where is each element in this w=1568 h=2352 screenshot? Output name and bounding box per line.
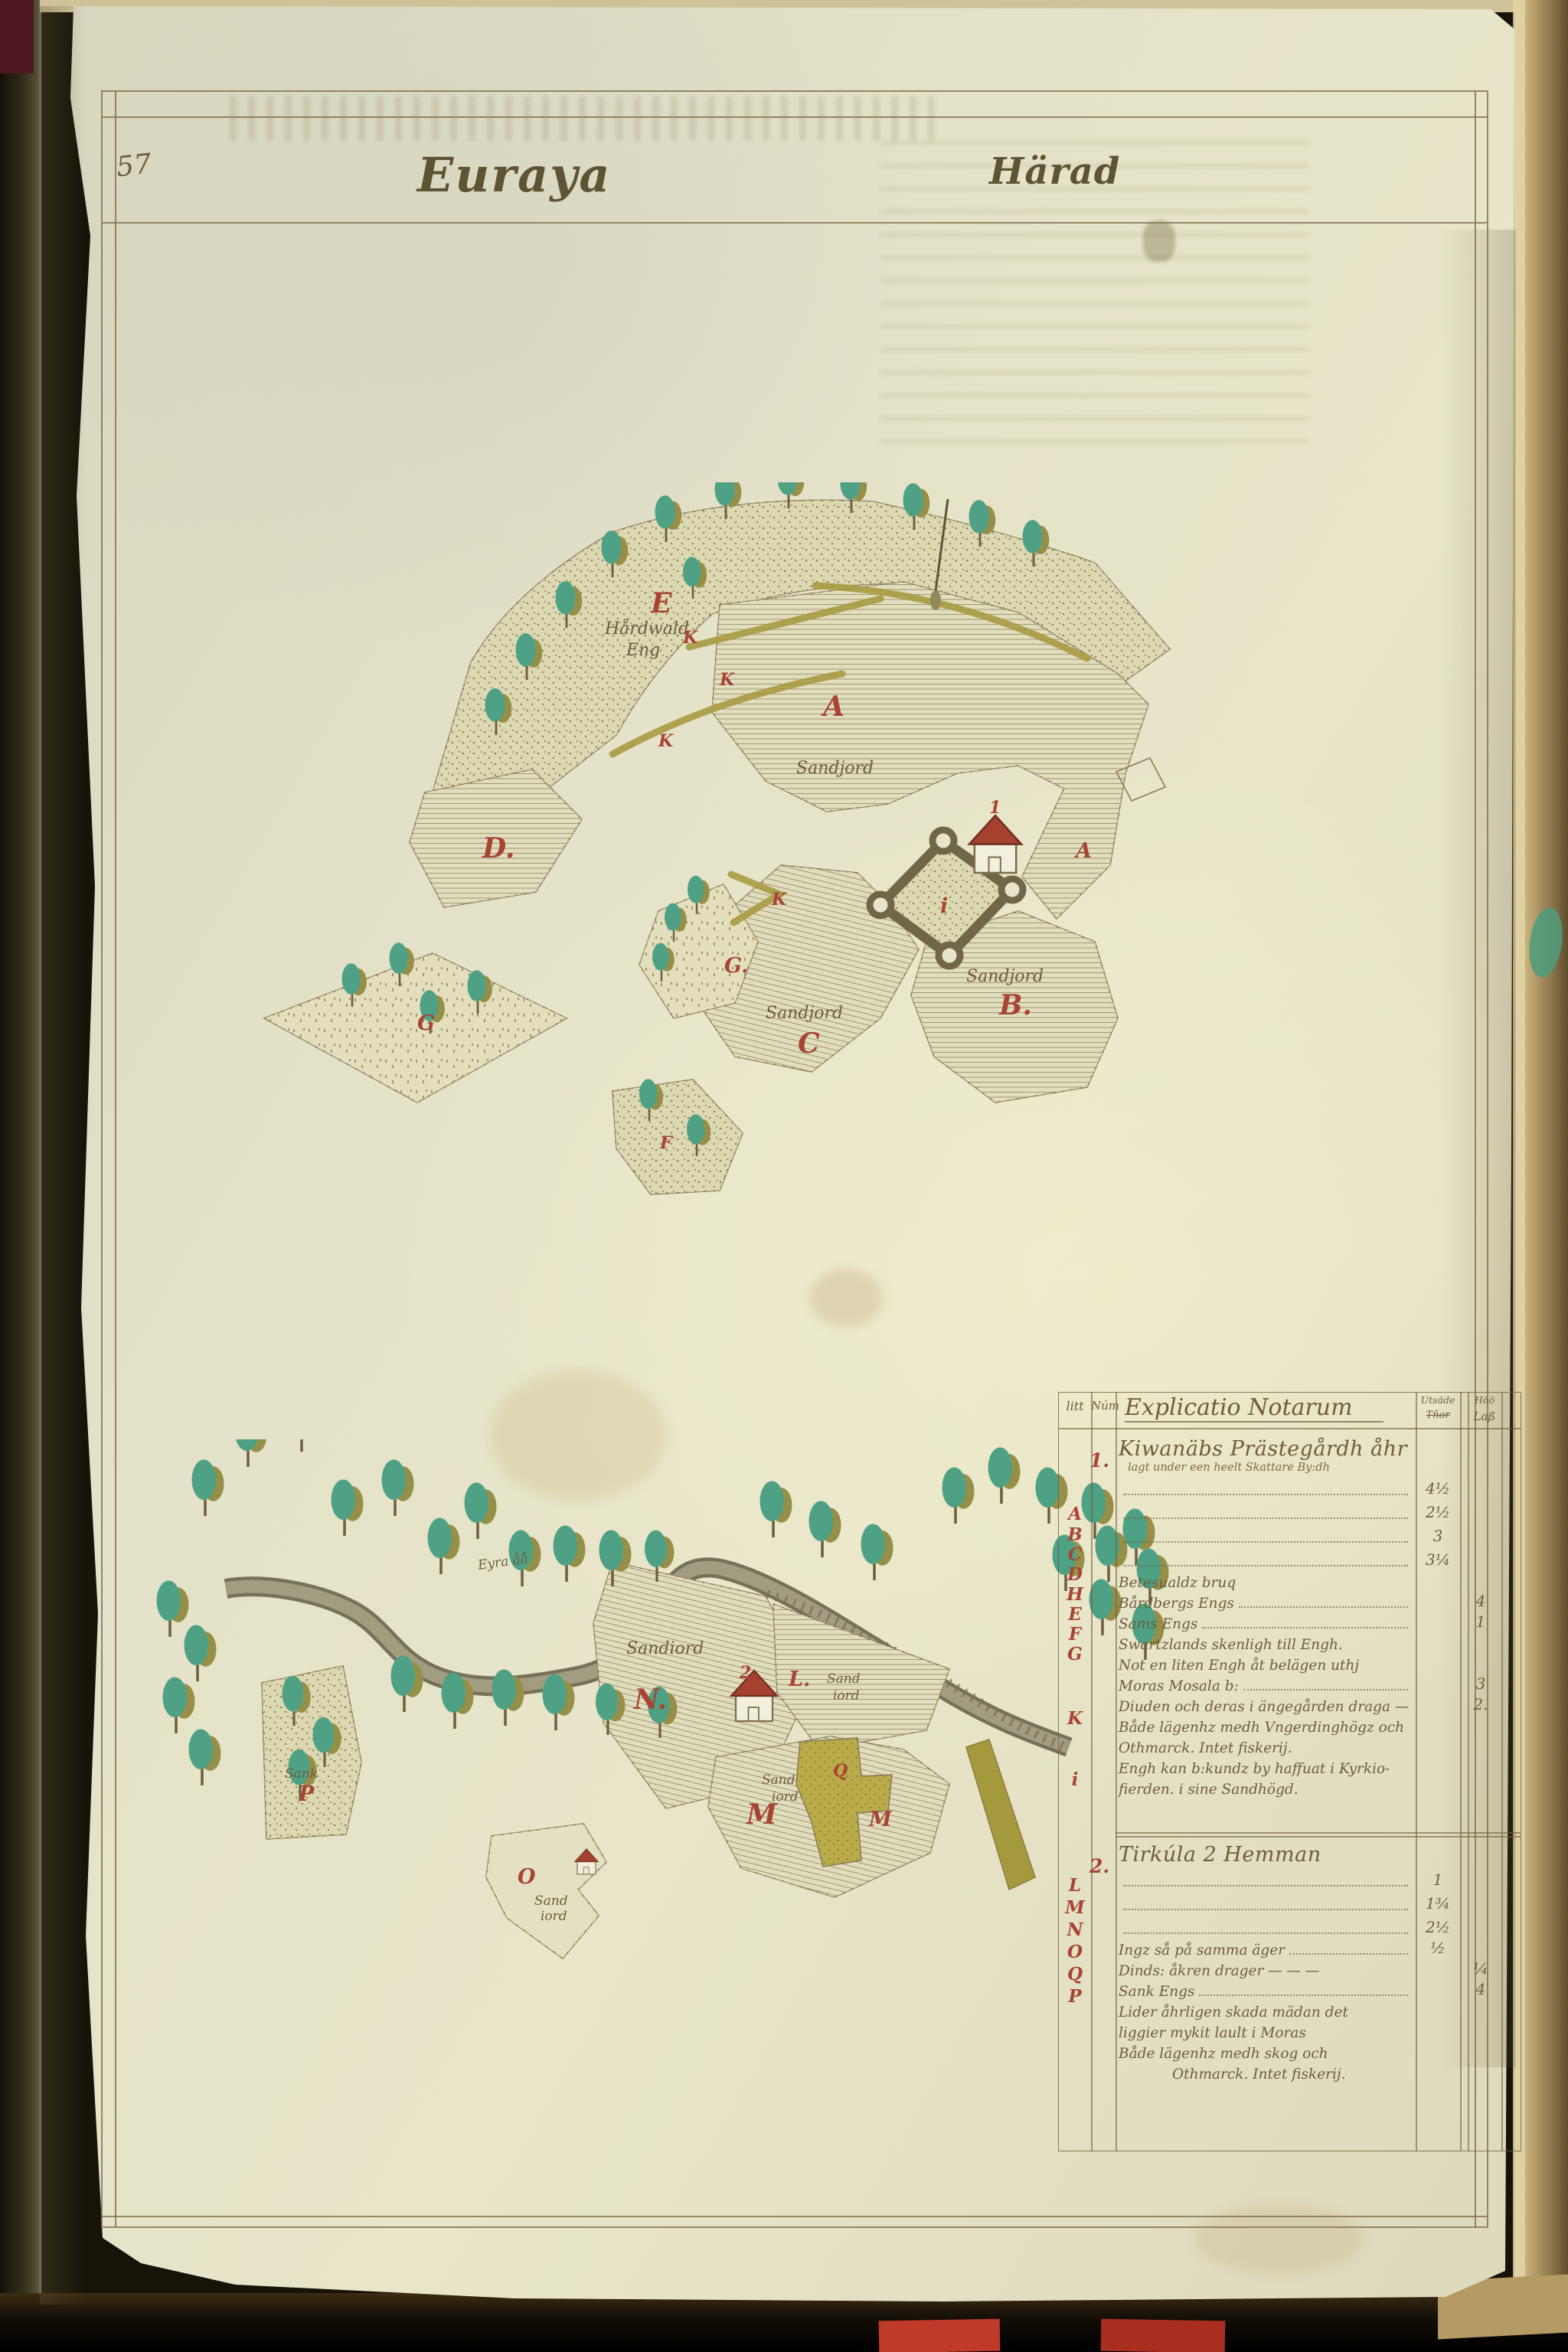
table-row: Not en liten Engh åt belägen uthj xyxy=(1119,1653,1411,1674)
row-text: Othmarck. Intet fiskerij. xyxy=(1119,1740,1292,1756)
parcel-letter-p: P xyxy=(298,1782,315,1806)
table-row: Bårdbergs Engs4 xyxy=(1119,1591,1411,1612)
soil-label-sandjord: Sandjord xyxy=(766,1004,843,1023)
row-text: Moras Mosala b: xyxy=(1119,1678,1239,1694)
row-text: Bårdbergs Engs xyxy=(1119,1596,1234,1612)
dotted-leader xyxy=(1123,1932,1408,1934)
shadow-band-bottom xyxy=(0,2293,1568,2352)
parcel-letter-a: A xyxy=(821,691,844,723)
meadow-label: Hårdwald xyxy=(604,618,689,639)
table-row: Ingz så på samma äger½ xyxy=(1119,1938,1411,1958)
parcel-letter-g: G. xyxy=(724,954,749,978)
litt-letter: O xyxy=(1059,1942,1091,1962)
parcel-letter-l: L. xyxy=(788,1668,810,1691)
dotted-leader xyxy=(1123,1517,1408,1519)
soil-label-sandiord: iord xyxy=(541,1909,567,1924)
dotted-leader xyxy=(1123,1909,1408,1910)
meadow-label: Eng xyxy=(626,641,660,660)
dotted-leader xyxy=(1123,1494,1408,1495)
soil-label-sandiord: Sand xyxy=(534,1893,568,1909)
parcel-letter-d: D. xyxy=(482,832,514,864)
parcel-letter-q: Q xyxy=(833,1761,848,1781)
entry-subtitle: lagt under een heelt Skattare By:dh xyxy=(1128,1462,1505,1474)
row-text: Sank Engs xyxy=(1119,1984,1194,2000)
lower-map: Eyra åå Sandiord N. 2 L. Sand iord Sand … xyxy=(115,1439,1187,2021)
litt-letter: L xyxy=(1059,1875,1091,1896)
table-row: 3¼ xyxy=(1119,1547,1411,1570)
dotted-leader xyxy=(1243,1689,1408,1690)
parcel-letter-b: B. xyxy=(998,989,1032,1021)
table-row: Sank Engs4 xyxy=(1119,1979,1411,2000)
value-lass: 1 xyxy=(1454,1612,1508,1631)
soil-label-sandiord: Sand xyxy=(762,1772,795,1788)
entry-number: 2. xyxy=(1085,1855,1114,1877)
photographed-atlas-page: 57 Euraya Härad xyxy=(0,0,1568,2352)
table-entry: Kiwanäbs Prästegårdh åhrlagt under een h… xyxy=(1119,1437,1505,1798)
value-tunnor: 1¾ xyxy=(1411,1894,1465,1913)
row-text: Ingz så på samma äger xyxy=(1119,1942,1285,1958)
soil-label-sandiord: Sandiord xyxy=(626,1639,704,1658)
row-text: Dinds: åkren drager — — — xyxy=(1119,1963,1319,1979)
parcel-letter-g: G xyxy=(417,1011,435,1035)
row-text: Diuden och deras i ängegården draga — xyxy=(1119,1699,1409,1715)
litt-letter: D xyxy=(1059,1564,1091,1585)
soil-label-sandjord: Sandjord xyxy=(796,759,874,778)
litt-letter: F xyxy=(1059,1624,1091,1645)
dotted-leader xyxy=(1123,1541,1408,1543)
deckle-edge-shadow xyxy=(40,6,86,2305)
parcel-letter-k: K xyxy=(658,731,674,751)
table-row: Dinds: åkren drager — — —¼ xyxy=(1119,1958,1411,1979)
litt-letter: M xyxy=(1059,1897,1091,1918)
litt-letter: E xyxy=(1059,1604,1091,1625)
value-lass: 2. xyxy=(1454,1695,1508,1713)
table-row: liggier mykit lault i Moras xyxy=(1119,2020,1411,2041)
parcel-letter-m: M xyxy=(745,1798,778,1831)
value-lass: 4 xyxy=(1454,1980,1508,1998)
paper-stain xyxy=(810,1269,883,1327)
dotted-leader xyxy=(1123,1565,1408,1566)
table-row: Swartzlands skenligh till Engh. xyxy=(1119,1632,1411,1653)
parcel-letter-c: C xyxy=(798,1027,820,1060)
value-tunnor: 2½ xyxy=(1411,1503,1465,1521)
dotted-leader xyxy=(1123,1885,1408,1886)
soil-label-sandjord: Sandjord xyxy=(966,967,1044,986)
table-row: Diuden och deras i ängegården draga —2. xyxy=(1119,1694,1411,1715)
row-text: Sams Engs xyxy=(1119,1616,1197,1632)
survey-pole-blade xyxy=(930,590,941,610)
value-lass: ¼ xyxy=(1454,1959,1508,1978)
row-text: Swartzlands skenligh till Engh. xyxy=(1119,1637,1343,1653)
row-text: Lider åhrligen skada mädan det xyxy=(1119,2004,1348,2020)
row-text: fierden. i sine Sandhögd. xyxy=(1119,1782,1298,1798)
row-text: liggier mykit lault i Moras xyxy=(1119,2025,1306,2041)
table-row: 2½ xyxy=(1119,1914,1411,1938)
red-bookmark-tab xyxy=(1101,2319,1226,2352)
litt-letter: K xyxy=(1059,1708,1091,1729)
table-row: Engh kan b:kundz by haffuat i Kyrkio- xyxy=(1119,1756,1411,1777)
frame-line xyxy=(101,90,1487,92)
ink-bleedthrough-mark xyxy=(1143,220,1175,262)
parcel-letter-i: i xyxy=(940,894,948,918)
book-cover-corner xyxy=(0,0,34,73)
litt-letter: C xyxy=(1059,1544,1091,1565)
soil-label-sandiord: Sand xyxy=(827,1671,861,1687)
table-row: 1 xyxy=(1119,1867,1411,1890)
table-row: Lider åhrligen skada mädan det xyxy=(1119,2000,1411,2020)
litt-letter: i xyxy=(1059,1769,1091,1790)
litt-letter: Q xyxy=(1059,1964,1091,1984)
dotted-leader xyxy=(1239,1606,1408,1608)
row-text: Not en liten Engh åt belägen uthj xyxy=(1119,1658,1359,1674)
row-text: Både lägenhz medh Vngerdinghögz och xyxy=(1119,1720,1404,1736)
value-tunnor: 3¼ xyxy=(1411,1550,1465,1569)
frame-line xyxy=(101,2226,1487,2228)
value-tunnor: 2½ xyxy=(1411,1918,1465,1936)
parcel-letter-e: E xyxy=(650,587,672,619)
table-row: Othmarck. Intet fiskerij. xyxy=(1119,2062,1465,2082)
litt-letter: P xyxy=(1059,1986,1091,2007)
dotted-leader xyxy=(1199,1994,1408,1996)
farmhouse-icon xyxy=(969,815,1021,873)
value-tunnor: 3 xyxy=(1411,1527,1465,1545)
entry-number: 1. xyxy=(1085,1449,1114,1472)
entry-title: Kiwanäbs Prästegårdh åhr xyxy=(1119,1437,1505,1461)
table-row: 4½ xyxy=(1119,1475,1411,1499)
explicatio-notarum-table: litt Núm Explicatio Notarum Utsäde Tñor … xyxy=(1058,1392,1521,2151)
table-row: fierden. i sine Sandhögd. xyxy=(1119,1777,1411,1798)
value-tunnor: ½ xyxy=(1411,1939,1465,1957)
parcel-letter-f: F xyxy=(659,1133,673,1153)
table-row: 2½ xyxy=(1119,1499,1411,1523)
district-title-right: Härad xyxy=(989,150,1120,193)
table-row: Både lägenhz medh Vngerdinghögz och xyxy=(1119,1715,1411,1736)
litt-letter: H xyxy=(1059,1584,1091,1605)
road xyxy=(966,1739,1035,1890)
book-spine xyxy=(0,0,41,2352)
row-text: Othmarck. Intet fiskerij. xyxy=(1172,2066,1346,2082)
place-label-sank: Sank xyxy=(285,1766,318,1782)
red-bookmark-tab xyxy=(879,2319,1001,2352)
frame-line xyxy=(101,222,1487,224)
litt-letter: G xyxy=(1059,1644,1091,1664)
frame-line xyxy=(101,90,103,2228)
litt-letter: B xyxy=(1059,1524,1091,1545)
litt-letter: A xyxy=(1059,1504,1091,1524)
parcel-letter-o: O xyxy=(518,1865,536,1889)
table-row: Moras Mosala b:3 xyxy=(1119,1674,1411,1694)
value-lass: 4 xyxy=(1454,1592,1508,1610)
parcel-letter-k: K xyxy=(771,890,787,910)
house-number: 1 xyxy=(989,798,1001,818)
table-row: Sams Engs1 xyxy=(1119,1612,1411,1632)
value-tunnor: 4½ xyxy=(1411,1479,1465,1498)
frame-line xyxy=(101,116,1487,118)
table-row: Både lägenhz medh skog och xyxy=(1119,2041,1411,2062)
row-text: Både lägenhz medh skog och xyxy=(1119,2046,1328,2062)
dotted-leader xyxy=(1289,1953,1408,1955)
dotted-leader xyxy=(1202,1627,1408,1628)
parcel-letter-k: K xyxy=(719,670,735,690)
parcel-letter-a: A xyxy=(1073,839,1092,863)
table-row: Othmarck. Intet fiskerij. xyxy=(1119,1736,1411,1756)
litt-letter: N xyxy=(1059,1919,1091,1940)
frame-line xyxy=(101,2216,1487,2217)
soil-label-sandiord: iord xyxy=(833,1688,860,1704)
table-body: ABCDHEFGKiLMNOQP1.Kiwanäbs Prästegårdh å… xyxy=(1059,1393,1521,2151)
row-text: Betesualdz bruq xyxy=(1119,1575,1236,1591)
value-tunnor: 1 xyxy=(1411,1870,1465,1889)
page-number: 57 xyxy=(115,149,153,184)
table-entry: Tirkúla 2 Hemman11¾2½Ingz så på samma äg… xyxy=(1119,1843,1505,2082)
table-row: 3 xyxy=(1119,1523,1411,1547)
row-text: Engh kan b:kundz by haffuat i Kyrkio- xyxy=(1119,1761,1390,1777)
entry-title: Tirkúla 2 Hemman xyxy=(1119,1843,1505,1867)
upper-map: E Hårdwald Eng K K K A Sandjord D. K i 1… xyxy=(245,482,1210,1217)
parcel-letter-m: M xyxy=(868,1808,893,1831)
table-row: Betesualdz bruq xyxy=(1119,1570,1411,1591)
district-title-left: Euraya xyxy=(417,147,611,203)
value-lass: 3 xyxy=(1454,1674,1508,1693)
house-number: 2 xyxy=(739,1663,751,1683)
table-row: 1¾ xyxy=(1119,1890,1411,1914)
parcel-letter-k: K xyxy=(682,628,698,648)
parcel-letter-n: N. xyxy=(633,1684,667,1716)
ink-bleedthrough xyxy=(230,96,934,141)
